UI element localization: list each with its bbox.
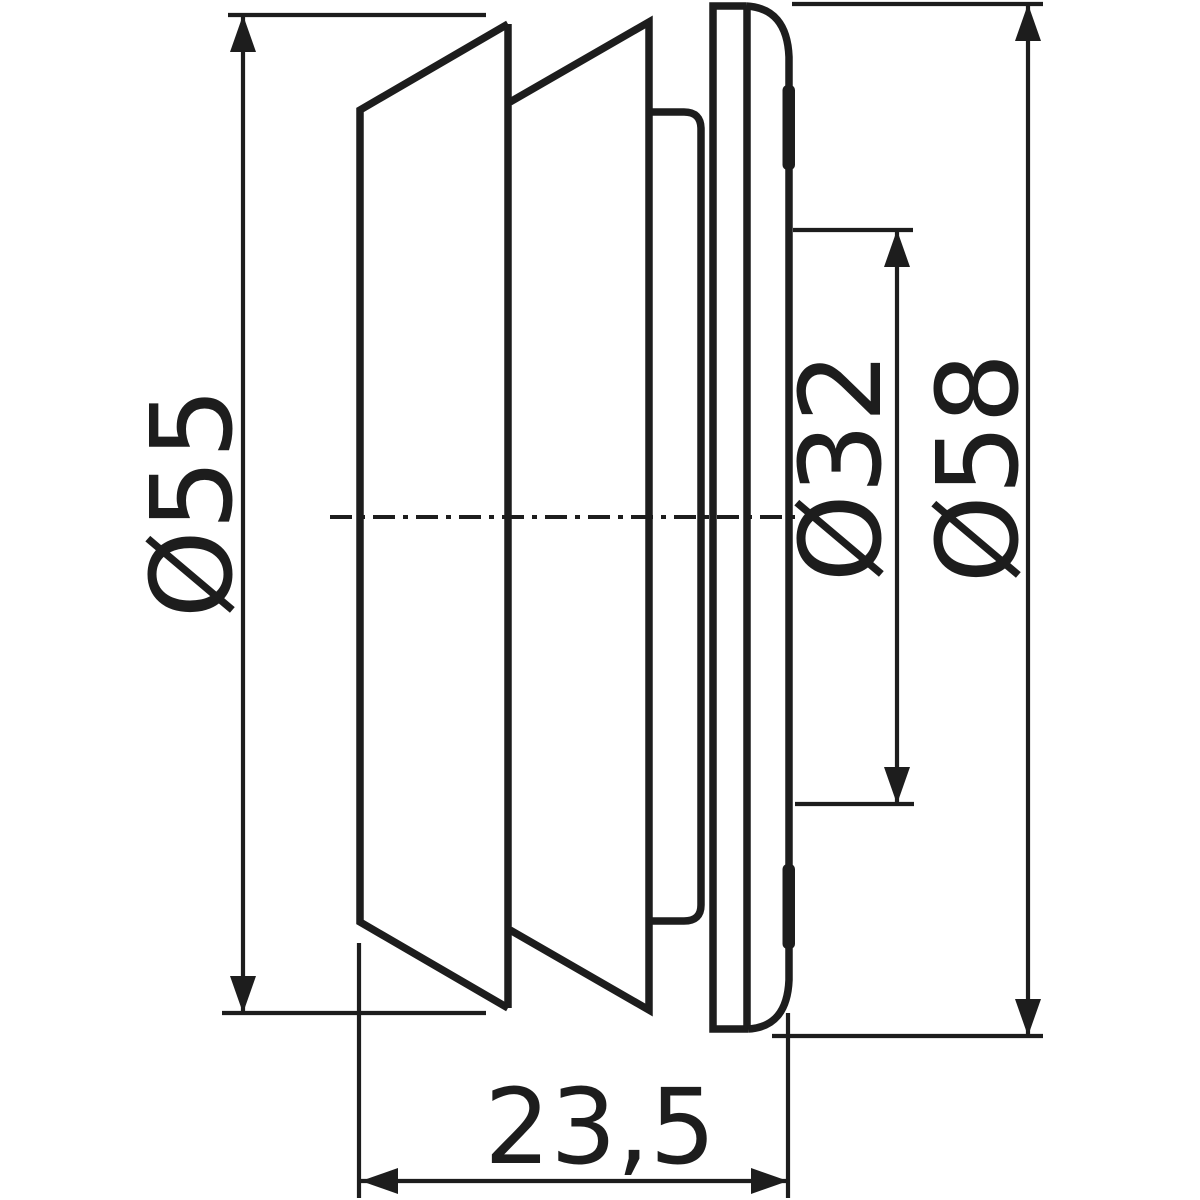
d58-arrow-up <box>1015 4 1041 41</box>
dimension-d32: Ø32 <box>777 230 914 804</box>
depth-arrow-left <box>361 1168 398 1194</box>
d32-arrow-down <box>884 767 910 804</box>
depth-arrow-right <box>751 1168 788 1194</box>
d55-label: Ø55 <box>128 388 258 619</box>
d55-arrow-down <box>230 976 256 1013</box>
dimension-drawing-svg: Ø55 Ø32 Ø58 23,5 <box>0 0 1200 1200</box>
d58-arrow-down <box>1015 999 1041 1036</box>
depth-label: 23,5 <box>484 1066 716 1188</box>
d32-label: Ø32 <box>777 352 907 583</box>
technical-drawing-canvas: Ø55 Ø32 Ø58 23,5 <box>0 0 1200 1200</box>
dimension-d55: Ø55 <box>128 15 486 1013</box>
d55-arrow-up <box>230 15 256 52</box>
dimension-depth: 23,5 <box>359 943 788 1198</box>
d32-arrow-up <box>884 230 910 267</box>
d58-label: Ø58 <box>914 353 1044 584</box>
flange-bead-bottom <box>783 864 796 949</box>
flange-bead-top <box>783 85 796 170</box>
